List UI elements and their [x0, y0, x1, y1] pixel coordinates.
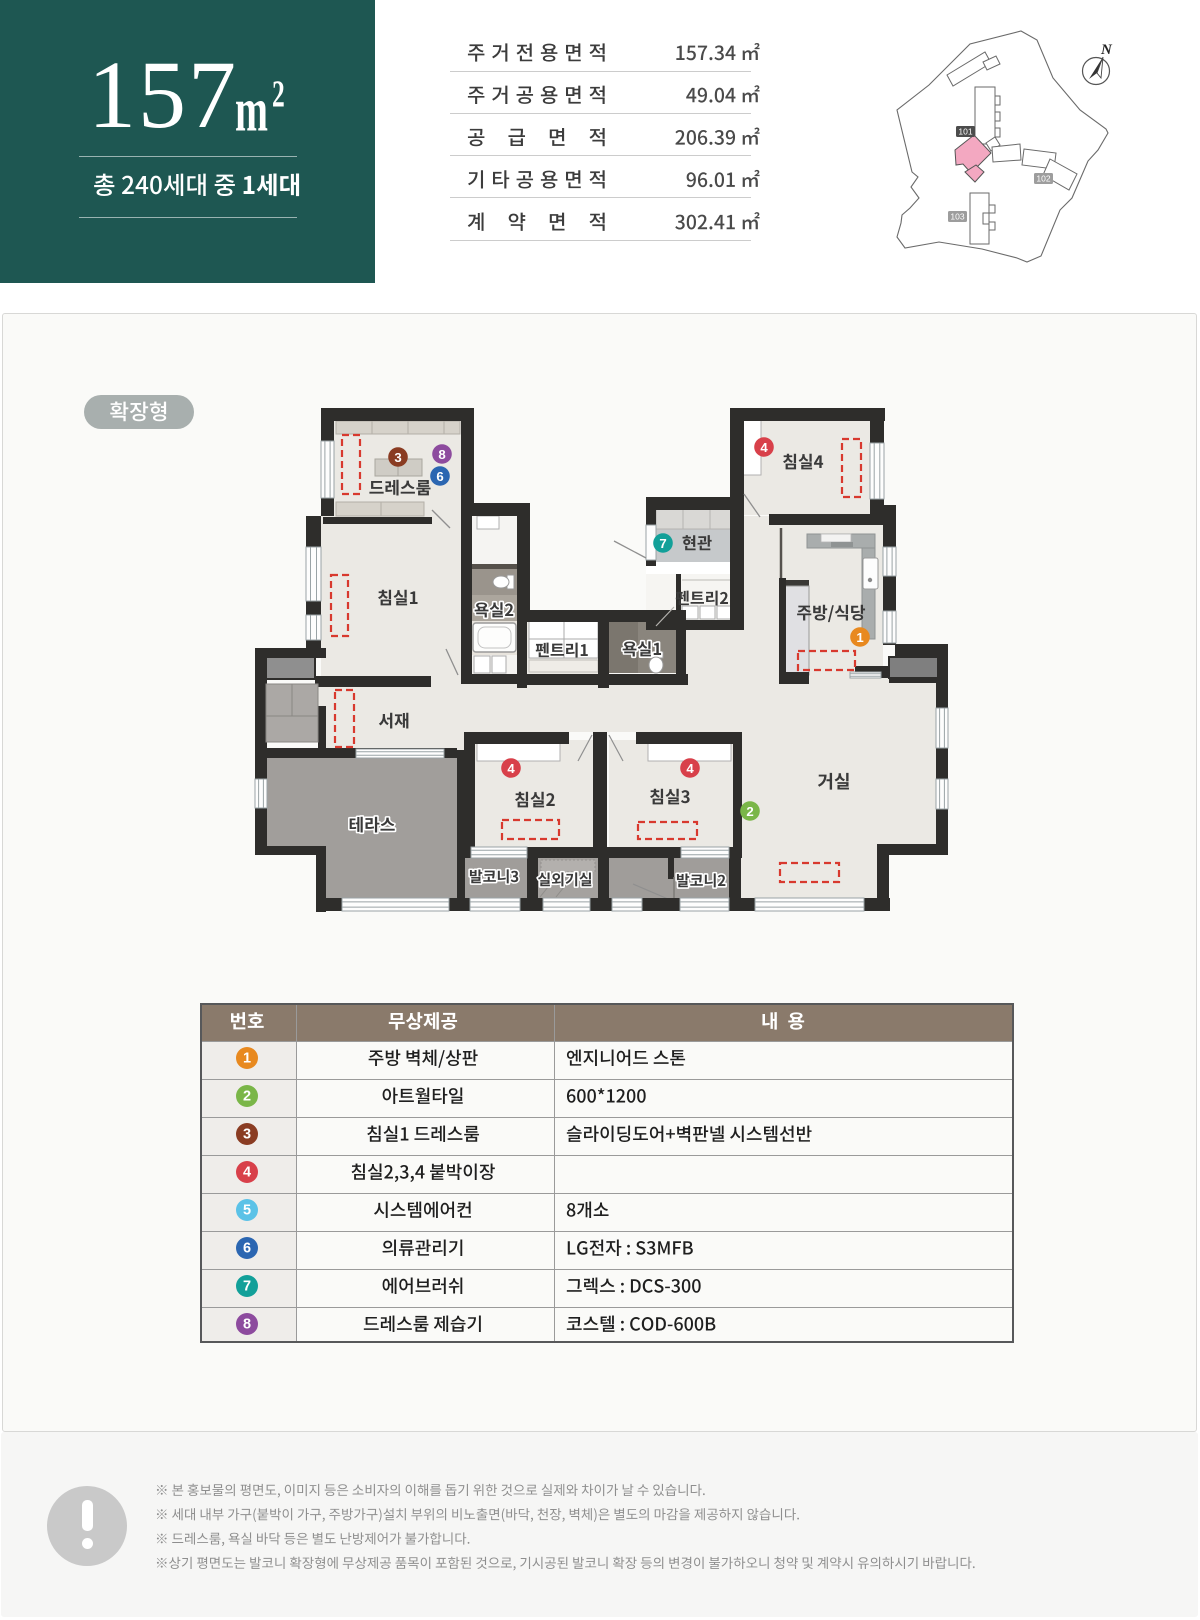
svg-text:3: 3	[243, 1127, 251, 1143]
svg-text:2: 2	[243, 1089, 251, 1105]
svg-text:6: 6	[243, 1241, 251, 1257]
svg-text:7: 7	[659, 536, 666, 551]
svg-text:103: 103	[950, 212, 964, 222]
svg-text:2: 2	[746, 804, 753, 819]
svg-text:4: 4	[686, 761, 694, 776]
svg-text:3: 3	[394, 450, 401, 465]
svg-text:4: 4	[243, 1165, 251, 1181]
svg-text:101: 101	[958, 127, 972, 137]
svg-text:102: 102	[1036, 174, 1050, 184]
svg-text:5: 5	[243, 1203, 251, 1219]
svg-text:4: 4	[507, 761, 515, 776]
svg-text:7: 7	[243, 1279, 251, 1295]
svg-text:1: 1	[243, 1051, 251, 1067]
svg-text:8: 8	[243, 1317, 251, 1333]
svg-text:8: 8	[438, 447, 445, 462]
svg-text:1: 1	[856, 630, 863, 645]
svg-text:4: 4	[760, 440, 768, 455]
svg-text:6: 6	[436, 469, 443, 484]
svg-text:N: N	[1100, 42, 1113, 58]
